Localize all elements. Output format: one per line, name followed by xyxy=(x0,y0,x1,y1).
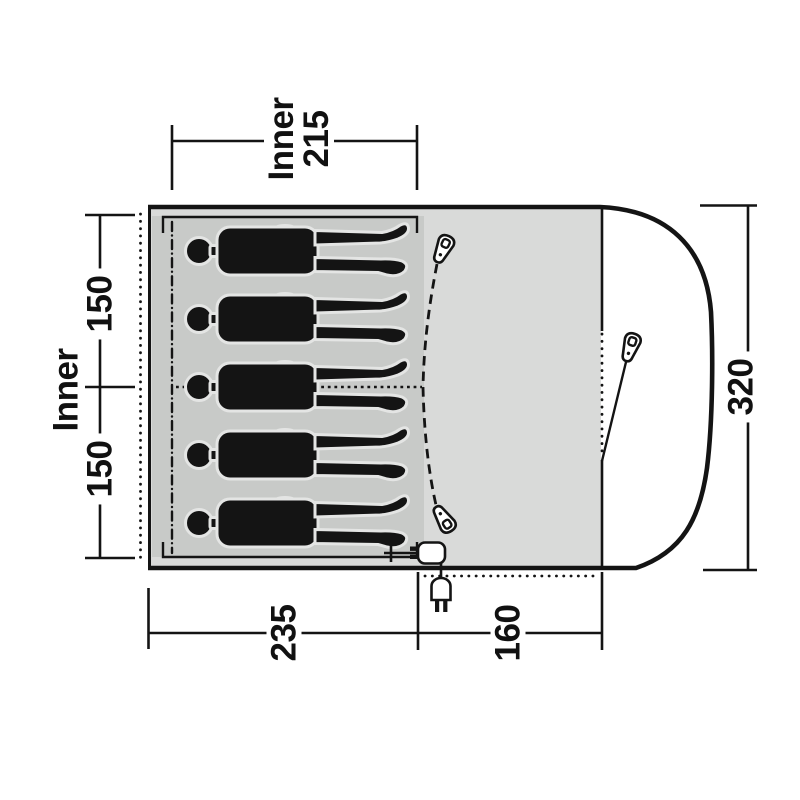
dim-label-bottom-inner-width: 235 xyxy=(267,598,302,669)
dim-label-left-150-top: 150 xyxy=(83,269,118,340)
dim-label-right-height: 320 xyxy=(724,352,759,423)
dim-label-top-width: Inner 215 xyxy=(264,90,334,187)
dim-label-left-inner: Inner xyxy=(49,341,84,438)
dim-label-left-150-bottom: 150 xyxy=(83,434,118,505)
zipper-pull-icon xyxy=(618,331,642,363)
tent-floorplan-diagram: Inner 215 Inner 150 150 320 235 160 xyxy=(0,0,800,800)
floorplan-drawing xyxy=(0,0,800,800)
dim-label-bottom-porch-width: 160 xyxy=(491,598,526,669)
front-door-zip-line xyxy=(602,362,626,461)
